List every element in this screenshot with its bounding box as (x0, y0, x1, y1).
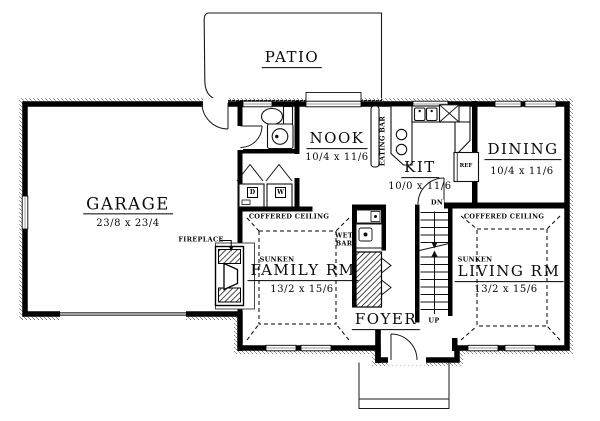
window-living-2 (505, 345, 535, 351)
wall-bath-right (295, 101, 300, 154)
window-family-2 (301, 345, 331, 351)
room-label-kitchen: KIT (401, 160, 439, 178)
room-label-family-text: FAMILY RM (247, 263, 358, 281)
bath-sink (272, 129, 288, 145)
wall-closet-right (295, 178, 300, 211)
room-label-garage-text: GARAGE (83, 195, 173, 214)
dryer-detail (242, 200, 250, 205)
bay-window (306, 93, 361, 102)
wall-stair-right (448, 206, 453, 316)
room-label-living-text: LIVING RM (455, 264, 564, 282)
bath-sink-drain (275, 135, 278, 138)
range-burner-1 (396, 129, 406, 139)
window-family-1 (266, 345, 296, 351)
fireplace-label: FIREPLACE (178, 237, 223, 244)
stairs-up-label: UP (428, 318, 439, 325)
room-dims-kitchen: 10/0 x 11/6 (388, 182, 452, 193)
toilet-bowl (262, 109, 283, 125)
room-label-nook: NOOK (307, 131, 368, 149)
window-bath (243, 101, 272, 107)
stairs-down-label: DN (430, 200, 444, 207)
room-label-kitchen-text: KIT (401, 160, 439, 178)
range-burner-2 (396, 144, 406, 154)
wall-living-top (444, 203, 565, 209)
cooktop (440, 105, 460, 122)
room-label-nook-text: NOOK (307, 131, 368, 149)
dryer-label: D (247, 187, 258, 198)
room-label-living: LIVING RM (455, 264, 564, 282)
room-label-garage: GARAGE (83, 195, 173, 214)
window-dining-1 (495, 101, 521, 107)
washer-label: W (275, 187, 286, 198)
garage-door (60, 311, 186, 321)
room-dims-living: 13/2 x 15/6 (474, 285, 538, 296)
window-living-1 (468, 345, 498, 351)
wall-living-stub (452, 338, 458, 351)
living-coffered-ceiling-label: COFFERED CEILING (464, 214, 544, 221)
room-label-dining-text: DINING (484, 142, 561, 160)
room-label-family: FAMILY RM (247, 263, 358, 281)
room-label-foyer-text: FOYER (352, 312, 420, 330)
room-dims-family: 13/2 x 15/6 (270, 285, 334, 296)
family-coffered-ceiling-label: COFFERED CEILING (249, 214, 329, 221)
wall-foyer-left-stub (375, 330, 381, 363)
porch-outline (359, 363, 449, 409)
window-nook-bay (306, 101, 361, 107)
room-dims-dining: 10/4 x 11/6 (490, 167, 554, 178)
wet-bar-label: WET BAR (331, 233, 357, 248)
room-label-patio-text: PATIO (262, 50, 322, 68)
pantry-shelves (356, 252, 382, 307)
room-label-dining: DINING (484, 142, 561, 160)
refrigerator-label: REF (460, 164, 473, 170)
wall-wetbar-top (352, 205, 386, 210)
wall-stair-left (415, 205, 420, 323)
floor-plan: PATIO GARAGE 23/8 x 23/4 NOOK 10/4 x 11/… (0, 0, 600, 421)
window-dining-2 (525, 101, 556, 107)
window-garage-left (22, 196, 28, 229)
room-label-patio: PATIO (262, 50, 322, 68)
eating-bar-label: EATING BAR (380, 116, 387, 166)
room-label-foyer: FOYER (352, 312, 420, 330)
room-dims-garage: 23/8 x 23/4 (96, 219, 160, 230)
wall-bath-bottom (243, 149, 295, 154)
room-dims-nook: 10/4 x 11/6 (305, 153, 369, 164)
